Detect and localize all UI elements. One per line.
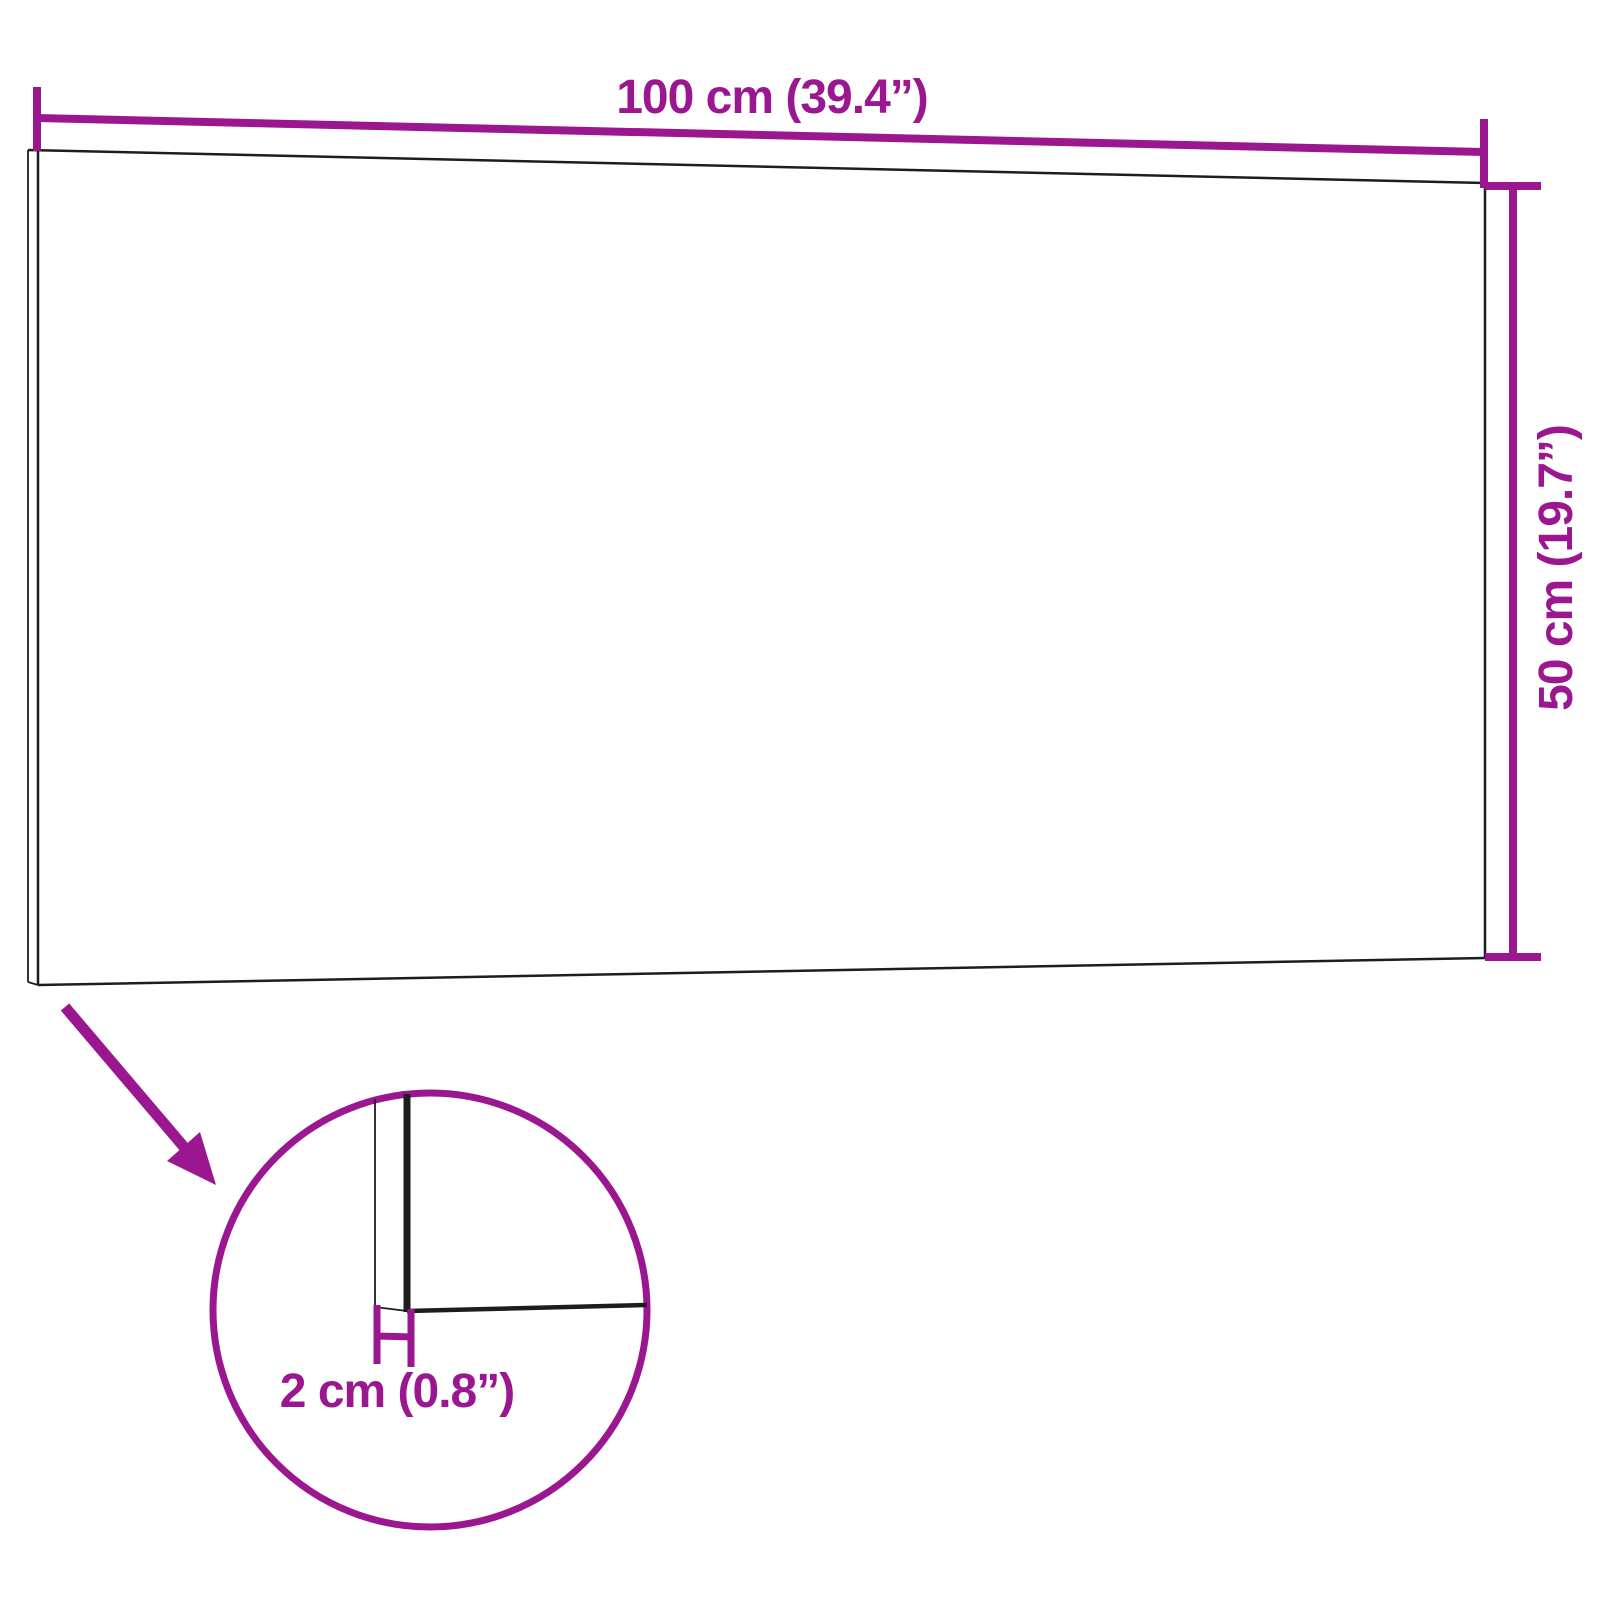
zoom-arrow-shaft [65,1007,184,1147]
height-dimension-label: 50 cm (19.7”) [1530,425,1583,711]
dimension-diagram: 100 cm (39.4”) 50 cm (19.7”) [0,0,1600,1600]
detail-bottom-edge [407,1305,647,1311]
panel-outline [28,150,1485,985]
height-dimension: 50 cm (19.7”) [1485,186,1583,957]
thickness-dimension-label: 2 cm (0.8”) [280,1365,514,1418]
width-dimension: 100 cm (39.4”) [37,71,1484,188]
diagram-canvas: 100 cm (39.4”) 50 cm (19.7”) [0,0,1600,1600]
width-dimension-label: 100 cm (39.4”) [616,71,928,124]
panel-top-edge [28,150,1485,183]
panel-bottom-edge [38,958,1485,985]
zoom-arrow [65,1007,216,1185]
panel-bottom-left-connector [28,982,38,985]
thickness-dimension: 2 cm (0.8”) [280,1305,514,1418]
thickness-detail: 2 cm (0.8”) [213,1093,647,1527]
thickness-dimension-bar [374,1336,414,1337]
